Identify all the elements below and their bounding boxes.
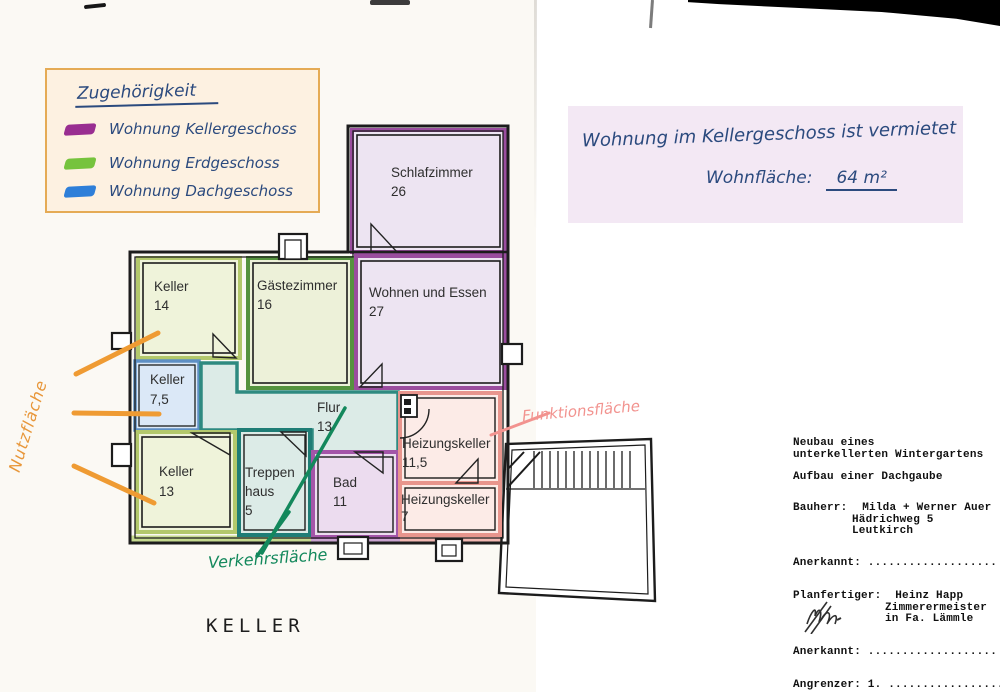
label-keller-14-area: 14: [154, 298, 170, 313]
room-schlafzimmer: [352, 130, 505, 252]
project-title-line1: Neubau eines: [793, 437, 875, 449]
legend-item-label: Wohnung Kellergeschoss: [109, 120, 297, 138]
legend-box: Zugehörigkeit Wohnung Kellergeschoss Woh…: [45, 68, 320, 213]
angrenzer-line: Angrenzer: 1. ..................: [793, 679, 1000, 691]
legend-item-label: Wohnung Dachgeschoss: [109, 182, 293, 200]
label-heizungskeller-11-5: Heizungskeller: [402, 436, 491, 451]
label-treppenhaus-2: haus: [245, 484, 275, 499]
label-flur-area: 13: [317, 419, 332, 434]
label-heizungskeller-7: Heizungskeller: [401, 492, 490, 507]
label-flur: Flur: [317, 400, 341, 415]
room-bad: [313, 452, 398, 537]
room-treppenhaus: [239, 430, 310, 535]
label-schlafzimmer-area: 26: [391, 184, 406, 199]
label-wohnen-und-essen-area: 27: [369, 304, 384, 319]
label-wohnen-und-essen: Wohnen und Essen: [369, 285, 487, 300]
legend-title: Zugehörigkeit: [75, 80, 219, 108]
room-heizungskeller-7: [400, 483, 500, 535]
label-keller-14: Keller: [154, 279, 189, 294]
bauherr-row: Bauherr: Milda + Werner Auer: [793, 502, 991, 514]
anerkannt-line-2: Anerkannt: ...................: [793, 646, 997, 658]
note-box: Wohnung im Kellergeschoss ist vermietet …: [568, 106, 963, 223]
label-keller-7-5-area: 7,5: [150, 392, 169, 407]
kellergeschoss-swatch: [63, 123, 96, 136]
anerkannt-line-1: Anerkannt: ...................: [793, 557, 997, 569]
exterior-annex: [499, 439, 655, 601]
label-heizungskeller-11-5-area: 11,5: [402, 455, 427, 470]
label-bad: Bad: [333, 475, 357, 490]
project-title-line3: Aufbau einer Dachgaube: [793, 471, 943, 483]
boiler-icon: [401, 395, 417, 417]
floor-label: KELLER: [206, 615, 305, 637]
label-keller-7-5: Keller: [150, 372, 185, 387]
room-keller-13: [137, 432, 235, 532]
legend-item-label: Wohnung Erdgeschoss: [109, 154, 280, 172]
legend-item-erdgeschoss: Wohnung Erdgeschoss: [65, 154, 280, 172]
planfertiger-name: Heinz Happ: [895, 590, 963, 602]
bauherr-name: Milda + Werner Auer: [862, 502, 991, 514]
legend-item-kellergeschoss: Wohnung Kellergeschoss: [65, 120, 297, 138]
chimney: [285, 240, 301, 259]
label-keller-13-area: 13: [159, 484, 174, 499]
note-text: Wohnung im Kellergeschoss ist vermietet: [582, 117, 957, 151]
label-schlafzimmer: Schlafzimmer: [391, 165, 473, 180]
bauherr-label: Bauherr:: [793, 502, 847, 514]
label-gaestezimmer: Gästezimmer: [257, 278, 338, 293]
label-gaestezimmer-area: 16: [257, 297, 272, 312]
wohnflaeche-label: Wohnfläche:: [706, 168, 812, 188]
bauherr-city: Leutkirch: [852, 525, 913, 537]
label-heizungskeller-7-area: 7: [401, 509, 409, 524]
label-keller-13: Keller: [159, 464, 194, 479]
note-wohnflaeche: Wohnfläche:64 m²: [706, 168, 897, 188]
label-treppenhaus-1: Treppen: [245, 465, 295, 480]
project-title-line2: unterkellerten Wintergartens: [793, 449, 983, 461]
label-bad-area: 11: [333, 494, 347, 509]
legend-item-dachgeschoss: Wohnung Dachgeschoss: [65, 182, 293, 200]
scanned-floor-plan-page: { "legend": { "title": "Zugehörigkeit", …: [0, 0, 1000, 692]
planfertiger-company: in Fa. Lämmle: [885, 613, 973, 625]
dachgeschoss-swatch: [63, 185, 96, 198]
label-treppenhaus-area: 5: [245, 503, 253, 518]
signature: [797, 594, 852, 634]
erdgeschoss-swatch: [63, 157, 96, 170]
wohnflaeche-value: 64 m²: [826, 168, 896, 191]
